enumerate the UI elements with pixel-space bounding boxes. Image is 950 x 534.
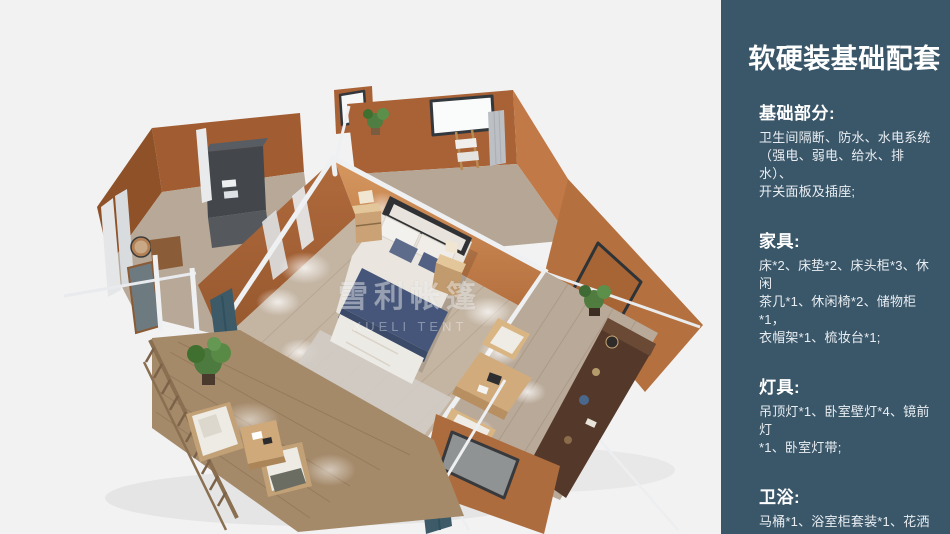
section-heading: 卫浴: bbox=[759, 483, 932, 508]
floor-plan-render: 雪利帐篷 XUELI TENT bbox=[0, 0, 722, 534]
section-heading: 灯具: bbox=[759, 373, 932, 398]
section-lighting: 灯具: 吊顶灯*1、卧室壁灯*4、镜前灯 *1、卧室灯带; bbox=[759, 373, 932, 457]
sidebar-title: 软硬装基础配套 bbox=[739, 44, 950, 75]
slide: 雪利帐篷 XUELI TENT 软硬装基础配套 基础部分: 卫生间隔断、防水、水… bbox=[0, 0, 950, 534]
section-body: 床*2、床垫*2、床头柜*3、休闲 茶几*1、休闲椅*2、储物柜*1， 衣帽架*… bbox=[759, 257, 932, 347]
shower-curtain bbox=[488, 110, 506, 166]
section-body: 吊顶灯*1、卧室壁灯*4、镜前灯 *1、卧室灯带; bbox=[759, 403, 932, 457]
section-basics: 基础部分: 卫生间隔断、防水、水电系统 （强电、弱电、给水、排水）、 开关面板及… bbox=[759, 99, 932, 201]
section-heading: 家具: bbox=[759, 227, 932, 252]
section-bathroom: 卫浴: 马桶*1、浴室柜套装*1、花洒*1、 置物架*1、浴帘*1; bbox=[759, 483, 932, 534]
floor-plan-svg bbox=[0, 0, 722, 534]
section-body: 卫生间隔断、防水、水电系统 （强电、弱电、给水、排水）、 开关面板及插座; bbox=[759, 129, 932, 201]
section-heading: 基础部分: bbox=[759, 99, 932, 124]
spec-sidebar: 软硬装基础配套 基础部分: 卫生间隔断、防水、水电系统 （强电、弱电、给水、排水… bbox=[721, 0, 950, 534]
section-furniture: 家具: 床*2、床垫*2、床头柜*3、休闲 茶几*1、休闲椅*2、储物柜*1， … bbox=[759, 227, 932, 347]
section-body: 马桶*1、浴室柜套装*1、花洒*1、 置物架*1、浴帘*1; bbox=[759, 513, 932, 534]
